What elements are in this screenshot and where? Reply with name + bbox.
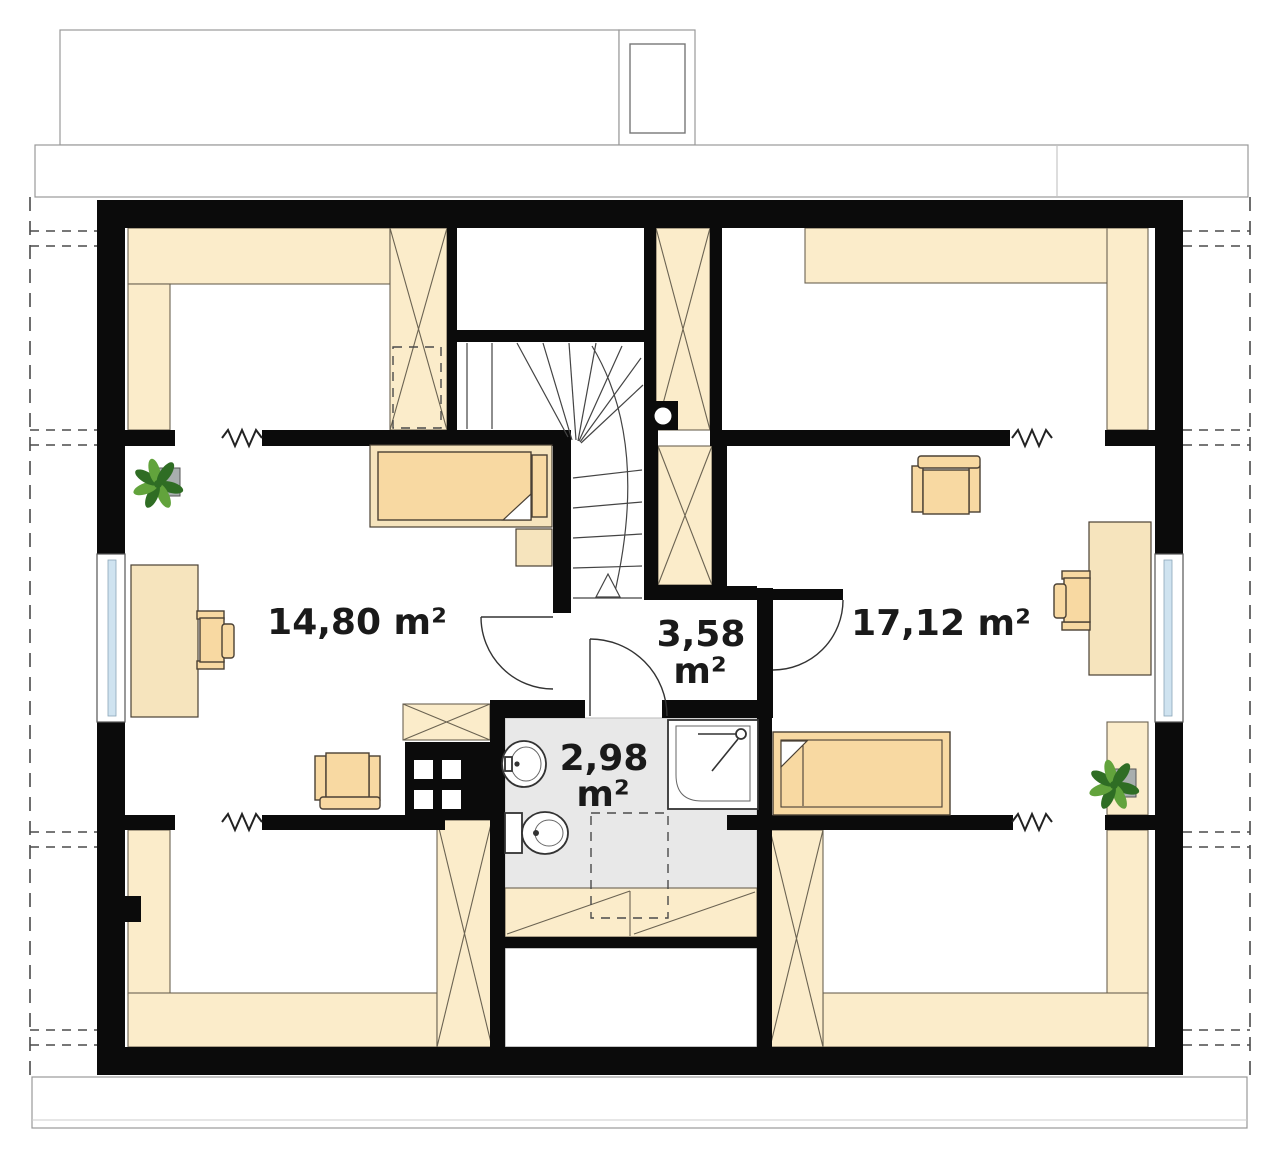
door-arc-left-bedroom bbox=[481, 617, 553, 689]
knee-wall-bottom-right bbox=[727, 815, 1013, 830]
desk-left bbox=[131, 565, 198, 717]
x-column-bottom-right bbox=[770, 830, 823, 1047]
x-column-mid-upper bbox=[656, 228, 710, 430]
zigzag-bottom-left bbox=[222, 814, 262, 830]
bed-right bbox=[773, 732, 950, 815]
wall-exterior-left-lower bbox=[97, 721, 125, 1075]
wall-exterior-top bbox=[97, 200, 1183, 228]
armchair-left bbox=[315, 753, 380, 809]
window-left bbox=[97, 554, 125, 722]
chair-left bbox=[197, 611, 234, 669]
x-lintel-bath bbox=[403, 704, 490, 740]
door-arc-bathroom bbox=[590, 639, 667, 716]
chimney bbox=[619, 30, 695, 145]
toilet-icon bbox=[505, 812, 568, 854]
wall-stub-left bbox=[125, 896, 141, 922]
closet-band-top-left bbox=[128, 228, 390, 284]
chair-right bbox=[1054, 571, 1090, 630]
plant-icon-left bbox=[132, 457, 185, 509]
bathroom-wall-right bbox=[757, 718, 772, 1048]
area-label-bathroom-unit: m² bbox=[576, 774, 629, 815]
x-column-mid-lower bbox=[658, 446, 712, 585]
area-label-right-bedroom: 17,12 m² bbox=[851, 603, 1031, 644]
wall-exterior-right-lower bbox=[1155, 721, 1183, 1075]
roof-height-lines-left bbox=[30, 231, 97, 1045]
door-bathroom bbox=[590, 639, 667, 716]
sloped-ceiling-hatch bbox=[505, 888, 757, 937]
zigzag-top-right bbox=[1012, 430, 1052, 446]
zigzag-top-left bbox=[222, 430, 262, 446]
window-right bbox=[1155, 554, 1183, 722]
door-leaf-right-bedroom bbox=[773, 589, 843, 600]
nightstand-left bbox=[516, 529, 552, 566]
closet-band-bottom-right bbox=[1107, 830, 1148, 995]
roof-ridge-outline bbox=[60, 30, 619, 145]
zigzag-bottom-right bbox=[1012, 814, 1052, 830]
wall-exterior-left-upper bbox=[97, 200, 125, 555]
area-label-bathroom-value: 2,98 bbox=[560, 738, 649, 779]
x-column-top-left bbox=[390, 228, 447, 430]
door-arc-right-bedroom bbox=[773, 600, 843, 670]
flue-block bbox=[405, 742, 498, 820]
wall-exterior-bottom bbox=[97, 1047, 1183, 1075]
door-left-bedroom bbox=[481, 617, 553, 689]
knee-wall-top-right bbox=[712, 430, 1010, 446]
eaves-band-top bbox=[35, 145, 1248, 197]
x-column-bottom-left bbox=[437, 820, 492, 1047]
bed-left bbox=[370, 445, 552, 527]
armchair-right bbox=[912, 456, 980, 514]
under-eaves-storage bbox=[505, 948, 757, 1047]
area-label-hallway-unit: m² bbox=[673, 651, 726, 692]
floor-plan-canvas: 14,80 m² 17,12 m² 3,58 m² 2,98 m² bbox=[0, 0, 1280, 1163]
shower-icon bbox=[668, 720, 758, 809]
desk-right bbox=[1089, 522, 1151, 675]
knee-wall-top-left bbox=[97, 430, 175, 446]
roof-height-lines-right bbox=[1183, 231, 1250, 1045]
area-label-left-bedroom: 14,80 m² bbox=[267, 602, 447, 643]
wall-exterior-right-upper bbox=[1155, 200, 1183, 555]
sink-icon bbox=[502, 741, 546, 787]
closet-band-top-right bbox=[805, 228, 1108, 283]
area-label-hallway-value: 3,58 bbox=[657, 614, 746, 655]
